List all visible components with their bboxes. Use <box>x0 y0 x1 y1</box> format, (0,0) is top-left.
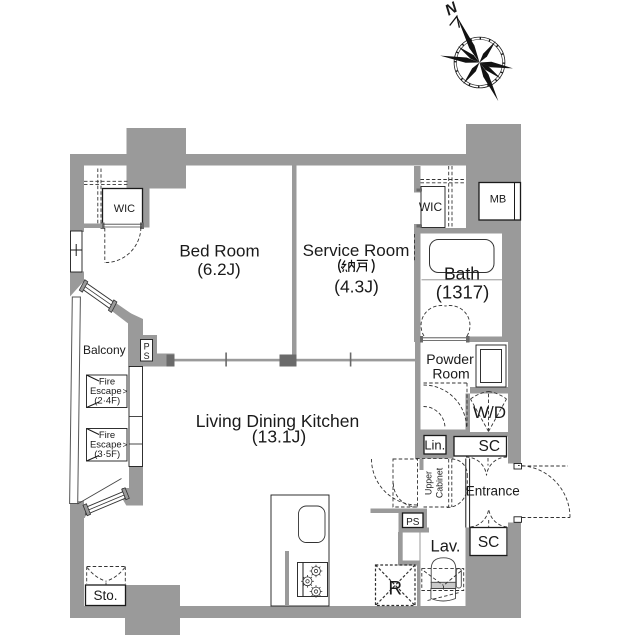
svg-text:(3·5F): (3·5F) <box>94 449 120 460</box>
svg-text:PS: PS <box>406 517 420 528</box>
svg-text:Entrance: Entrance <box>466 484 520 499</box>
svg-text:W/D: W/D <box>473 403 506 422</box>
svg-text:Bath: Bath <box>444 264 480 284</box>
svg-text:Service Room: Service Room <box>303 241 410 260</box>
svg-text:(4.3J): (4.3J) <box>334 277 379 297</box>
svg-text:Cabinet: Cabinet <box>435 467 445 498</box>
svg-text:SC: SC <box>479 438 501 455</box>
svg-text:S: S <box>144 351 150 361</box>
svg-text:Bed Room: Bed Room <box>179 242 259 261</box>
svg-text:Lav.: Lav. <box>431 538 461 556</box>
svg-text:WIC: WIC <box>419 200 443 214</box>
svg-text:Balcony: Balcony <box>83 343 126 357</box>
svg-text:Upper: Upper <box>424 471 434 495</box>
svg-text:(1317): (1317) <box>436 282 489 303</box>
svg-text:(6.2J): (6.2J) <box>197 260 240 279</box>
svg-text:>: > <box>123 441 128 450</box>
svg-text:Lin.: Lin. <box>424 438 445 453</box>
svg-text:Sto.: Sto. <box>93 588 117 603</box>
svg-text:SC: SC <box>478 534 500 551</box>
svg-text:Room: Room <box>432 366 469 382</box>
svg-text:WIC: WIC <box>114 203 135 215</box>
svg-text:MB: MB <box>490 194 507 206</box>
svg-text:(2·4F): (2·4F) <box>94 396 120 407</box>
svg-text:(13.1J): (13.1J) <box>252 427 306 447</box>
svg-text:R: R <box>388 579 402 600</box>
svg-text:>: > <box>123 387 128 396</box>
